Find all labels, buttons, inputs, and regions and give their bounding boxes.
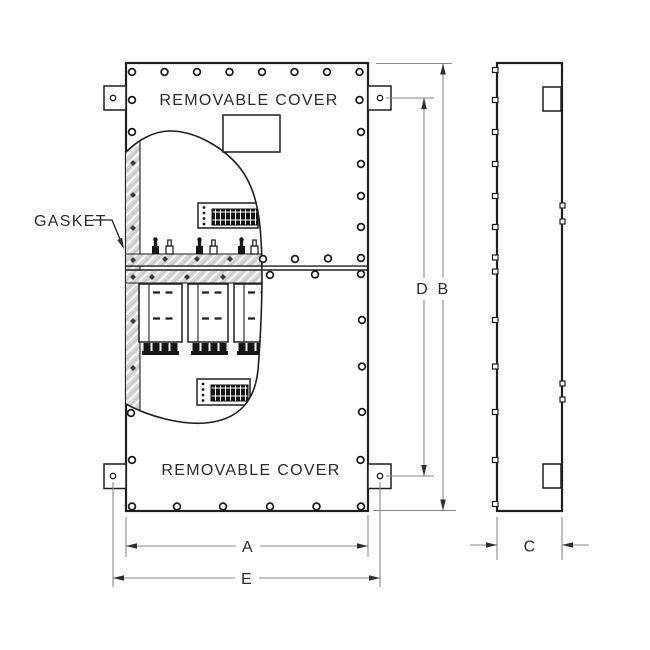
- mounting-tab-bottom-left: [104, 464, 126, 489]
- dim-c-label: C: [524, 539, 537, 556]
- mounting-tab-top-left: [104, 86, 126, 110]
- gasket-leader-arrow: [117, 238, 124, 249]
- side-mounting-tab-top: [543, 87, 561, 111]
- drawing-canvas: REMOVABLE COVER REMOVABLE COVER: [0, 0, 650, 650]
- terminal-block-upper: [198, 203, 258, 228]
- gasket-hatch-seam-lower: [126, 271, 274, 283]
- dim-d-label: D: [416, 281, 429, 298]
- dim-b-label: B: [438, 281, 450, 298]
- terminal-block-lower: [197, 379, 250, 405]
- dim-a-label: A: [242, 539, 254, 556]
- technical-drawing: REMOVABLE COVER REMOVABLE COVER: [0, 0, 650, 650]
- removable-cover-label-bottom: REMOVABLE COVER: [161, 462, 340, 479]
- dim-e-label: E: [241, 571, 253, 588]
- gasket-label: GASKET: [34, 213, 107, 230]
- side-view: [493, 63, 566, 511]
- side-body: [497, 63, 562, 511]
- gasket-callout: GASKET: [34, 213, 124, 249]
- side-mounting-tab-bottom: [543, 464, 561, 488]
- dim-A: A: [126, 515, 368, 557]
- dim-C: C: [470, 517, 589, 560]
- nameplate: [223, 115, 280, 152]
- transformer-blocks: [139, 284, 274, 355]
- transformer-block: [188, 284, 228, 355]
- front-view: REMOVABLE COVER REMOVABLE COVER: [104, 63, 391, 511]
- removable-cover-label-top: REMOVABLE COVER: [159, 92, 338, 109]
- dim-D: D: [386, 98, 434, 476]
